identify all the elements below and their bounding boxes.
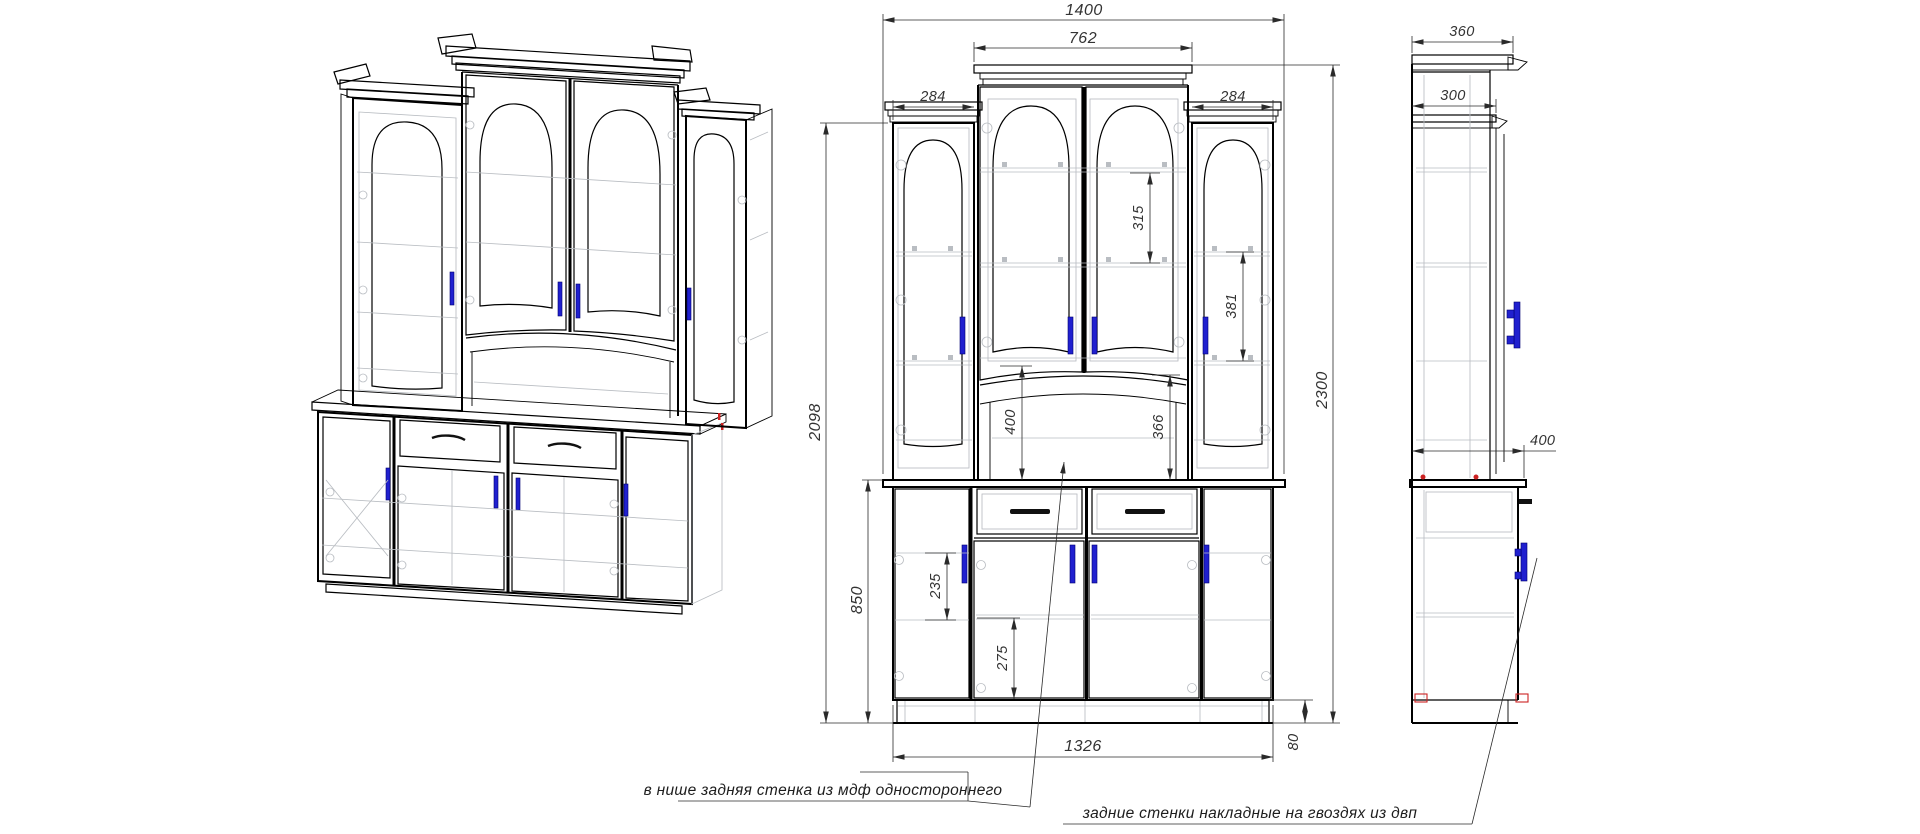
front-left-tower: [885, 102, 982, 480]
front-right-tower: [1184, 102, 1281, 480]
dim-text-2098: 2098: [807, 403, 824, 442]
dim-text-284-left: 284: [919, 89, 945, 105]
note-text-rear-panels: задние стенки накладные на гвоздях из дв…: [1082, 805, 1418, 822]
red-mark: [1421, 475, 1426, 480]
note-niche-back: в нише задняя стенка из мдф односторонне…: [644, 462, 1064, 807]
dim-text-300: 300: [1440, 88, 1465, 104]
dim-upper-height: 2098: [807, 123, 893, 723]
door-handle: [386, 468, 390, 500]
door-handle-profile: [1514, 302, 1520, 348]
dim-lower-shelf-height: 275: [977, 618, 1020, 699]
door-handle: [1203, 317, 1208, 354]
dim-niche-height-left: 400: [1000, 366, 1032, 480]
door-handle-profile: [1507, 336, 1514, 344]
dim-text-381: 381: [1224, 293, 1240, 318]
persp-center-section: [438, 34, 692, 418]
door-handle: [1092, 545, 1097, 583]
dim-text-400: 400: [1003, 409, 1019, 434]
door-handle: [1204, 545, 1209, 583]
door-handle: [516, 478, 520, 510]
door-handle: [576, 284, 580, 318]
dim-text-275: 275: [995, 645, 1011, 672]
dim-text-80: 80: [1286, 734, 1302, 751]
drawer-handle: [432, 436, 465, 440]
drawer-handle: [1125, 509, 1165, 514]
side-view: [1410, 55, 1532, 723]
dim-center-shelf-spacing: 315: [1130, 173, 1160, 263]
dim-text-2300: 2300: [1314, 371, 1331, 410]
door-handle: [1092, 317, 1097, 354]
drawer-handle: [1010, 509, 1050, 514]
door-handle-profile: [1515, 572, 1521, 579]
door-handle: [962, 545, 967, 583]
dim-plinth-height: 80: [1269, 700, 1313, 750]
side-view-dimensions: 360 300 400: [1412, 24, 1556, 478]
door-handle-profile: [1515, 549, 1521, 556]
door-handle-profile: [1507, 310, 1514, 318]
furniture-technical-drawing: 1400 762 284 284 2098: [0, 0, 1920, 834]
red-mark: [1415, 694, 1427, 702]
red-mark: [718, 413, 721, 420]
door-handle: [687, 288, 691, 320]
dim-text-360: 360: [1449, 24, 1474, 40]
door-handle: [450, 272, 454, 305]
door-handle: [494, 476, 498, 508]
dim-text-1326: 1326: [1064, 738, 1102, 755]
dim-cornice-depth: 360: [1412, 24, 1513, 53]
drawer-handle-profile: [1519, 499, 1532, 504]
dim-text-850: 850: [849, 586, 866, 614]
dim-text-400-side: 400: [1530, 433, 1555, 449]
door-handle: [558, 282, 562, 316]
dim-left-tower-width: 284: [893, 89, 974, 120]
cad-drawing-page: 1400 762 284 284 2098: [0, 0, 1920, 834]
red-mark: [1474, 475, 1479, 480]
note-rear-panels: задние стенки накладные на гвоздях из дв…: [1063, 558, 1537, 824]
dim-text-1400: 1400: [1065, 2, 1103, 19]
persp-left-tower: [334, 64, 474, 411]
dim-text-315: 315: [1131, 205, 1147, 231]
dim-side-shelf-height: 235: [925, 553, 956, 620]
dim-text-366: 366: [1151, 414, 1167, 440]
persp-right-tower: [674, 88, 772, 428]
door-handle: [624, 484, 628, 516]
dim-base-height: 850: [849, 480, 883, 723]
dim-upper-depth: 300: [1412, 88, 1496, 113]
persp-lower-cabinet: [312, 390, 726, 614]
door-handle: [1070, 545, 1075, 583]
dim-text-762: 762: [1069, 30, 1097, 47]
door-handle: [1068, 317, 1073, 354]
door-handle: [960, 317, 965, 354]
front-view: [883, 65, 1285, 723]
note-text-niche-back: в нише задняя стенка из мдф односторонне…: [644, 782, 1003, 799]
annotations: в нише задняя стенка из мдф односторонне…: [644, 462, 1537, 824]
dim-text-235: 235: [928, 573, 944, 600]
perspective-view: [312, 34, 772, 614]
front-lower-cabinet: [883, 480, 1285, 723]
leader-line-rear: [1472, 558, 1537, 824]
dim-carcass-width: 1326: [893, 705, 1273, 762]
dim-total-height: 2300: [1192, 65, 1340, 723]
drawer-handle: [548, 444, 581, 448]
dim-upper-center-width: 762: [974, 30, 1192, 62]
dim-side-shelf-spacing: 381: [1224, 252, 1254, 361]
dim-text-284-right: 284: [1219, 89, 1245, 105]
door-handle-profile: [1521, 543, 1527, 581]
dim-right-tower-width: 284: [1192, 89, 1273, 120]
